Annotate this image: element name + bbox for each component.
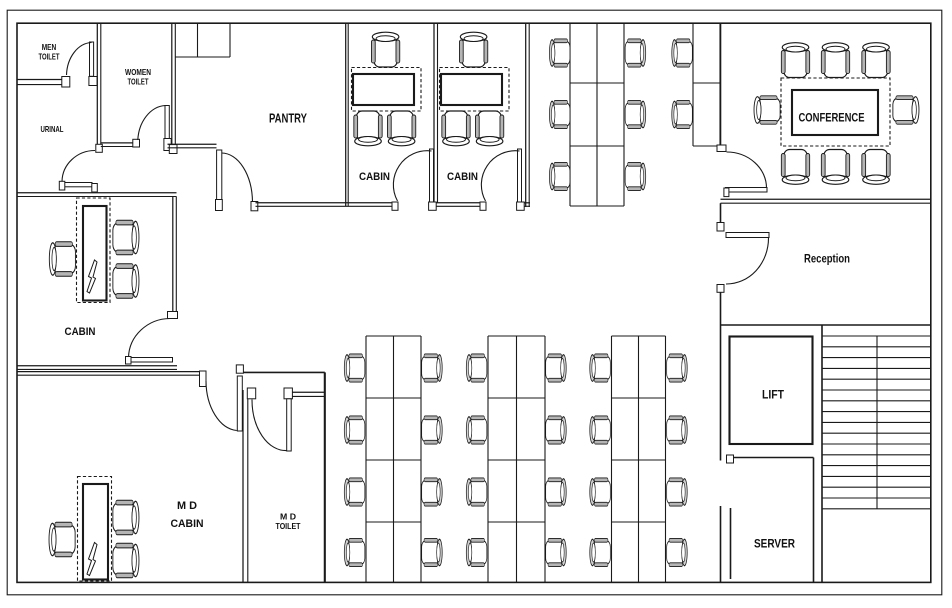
svg-text:TOILET: TOILET — [128, 77, 150, 87]
svg-text:TOILET: TOILET — [276, 522, 301, 531]
svg-text:CABIN: CABIN — [171, 518, 204, 530]
svg-text:CABIN: CABIN — [359, 171, 390, 183]
svg-text:URINAL: URINAL — [41, 124, 64, 134]
svg-text:PANTRY: PANTRY — [269, 112, 308, 126]
svg-text:CABIN: CABIN — [65, 326, 96, 338]
svg-text:Reception: Reception — [804, 252, 850, 266]
svg-text:SERVER: SERVER — [754, 537, 795, 551]
svg-text:LIFT: LIFT — [762, 390, 784, 402]
svg-text:M D: M D — [280, 513, 296, 522]
svg-text:TOILET: TOILET — [39, 52, 61, 62]
svg-text:MEN: MEN — [42, 42, 57, 52]
svg-text:WOMEN: WOMEN — [125, 67, 151, 77]
svg-text:M D: M D — [177, 500, 197, 512]
svg-text:CONFERENCE: CONFERENCE — [799, 111, 865, 125]
svg-text:CABIN: CABIN — [447, 171, 478, 183]
